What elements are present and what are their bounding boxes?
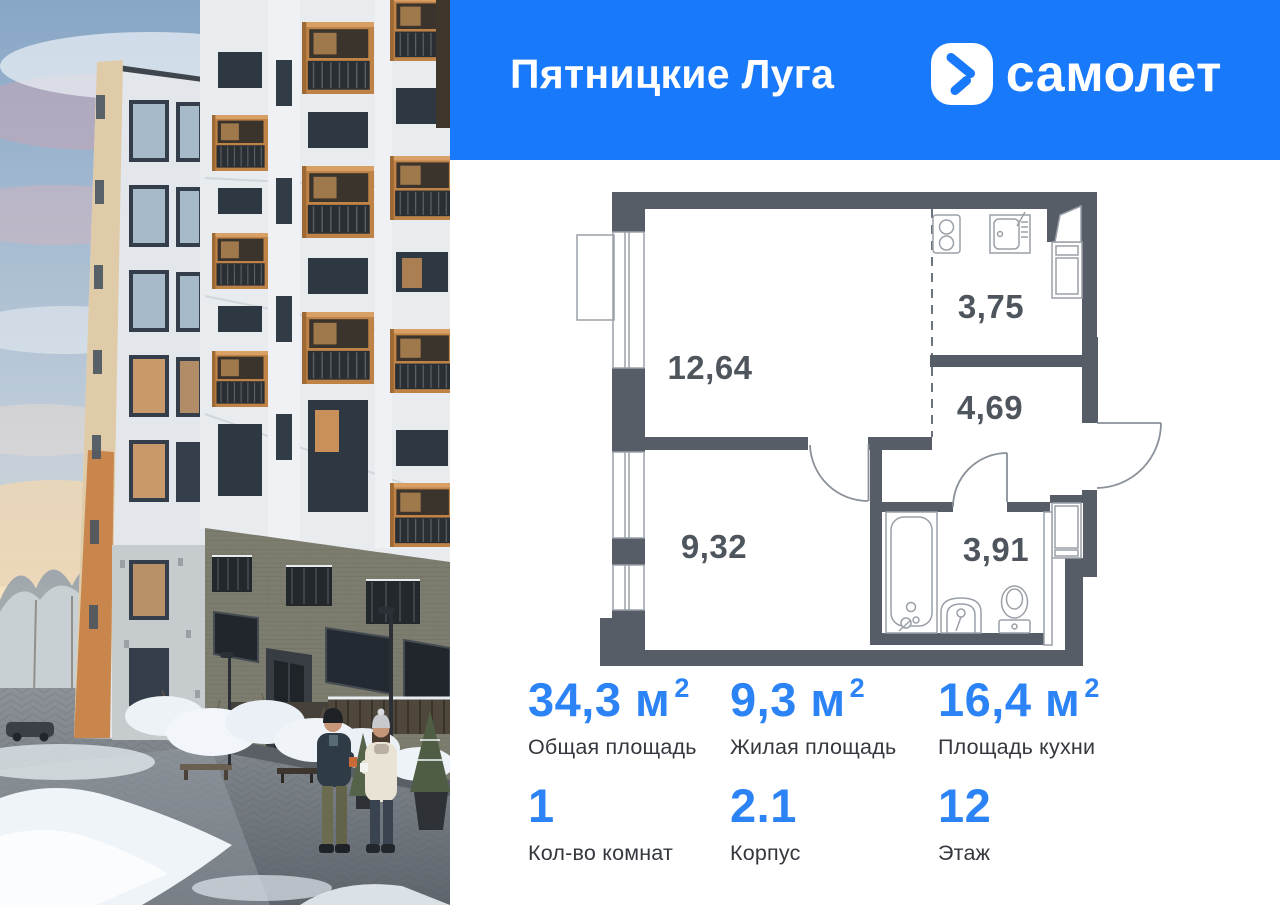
stat-value: 12 bbox=[938, 782, 991, 829]
stat-label: Кол-во комнат bbox=[528, 841, 673, 866]
stat-label: Этаж bbox=[938, 841, 991, 866]
stat-value: 1 bbox=[528, 782, 673, 829]
listing-card: Пятницкие Луга самолет bbox=[0, 0, 1280, 905]
stat-value: 2.1 bbox=[730, 782, 801, 829]
stat-floor: 12 Этаж bbox=[938, 782, 991, 866]
stat-value: 34,3 м2 bbox=[528, 676, 697, 723]
stat-value: 9,3 м2 bbox=[730, 676, 896, 723]
info-pane: Пятницкие Луга самолет bbox=[450, 0, 1280, 905]
stat-living-area: 9,3 м2 Жилая площадь bbox=[730, 676, 896, 760]
stats: 34,3 м2 Общая площадь 9,3 м2 Жилая площа… bbox=[450, 0, 1280, 905]
stat-kitchen-area: 16,4 м2 Площадь кухни bbox=[938, 676, 1100, 760]
near-building bbox=[200, 0, 450, 796]
stat-label: Корпус bbox=[730, 841, 801, 866]
stat-building: 2.1 Корпус bbox=[730, 782, 801, 866]
stat-label: Площадь кухни bbox=[938, 735, 1100, 760]
stat-label: Жилая площадь bbox=[730, 735, 896, 760]
stat-value: 16,4 м2 bbox=[938, 676, 1100, 723]
stat-label: Общая площадь bbox=[528, 735, 697, 760]
stat-total-area: 34,3 м2 Общая площадь bbox=[528, 676, 697, 760]
building-photo bbox=[0, 0, 450, 905]
left-tower bbox=[74, 60, 210, 740]
stat-rooms-count: 1 Кол-во комнат bbox=[528, 782, 673, 866]
